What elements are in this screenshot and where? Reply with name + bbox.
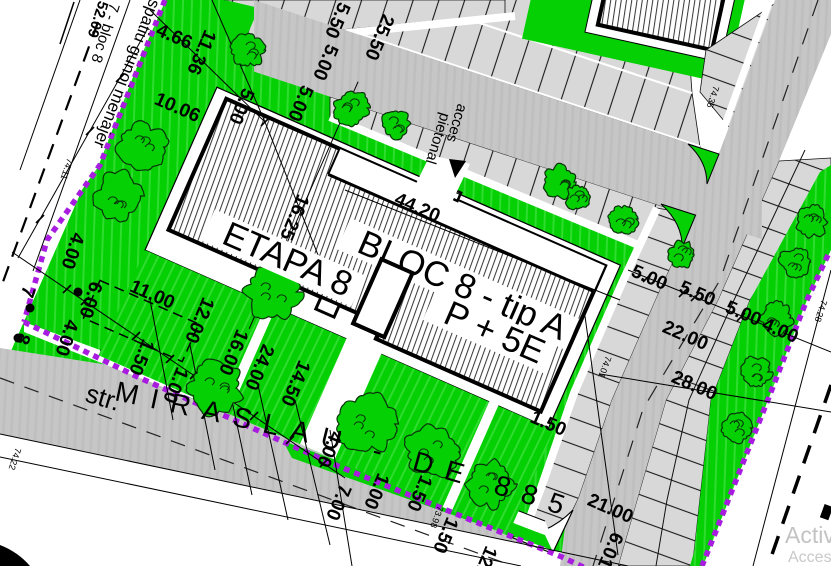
svg-text:Accesați: Accesați [788,549,831,566]
svg-text:Activa: Activa [785,522,831,548]
